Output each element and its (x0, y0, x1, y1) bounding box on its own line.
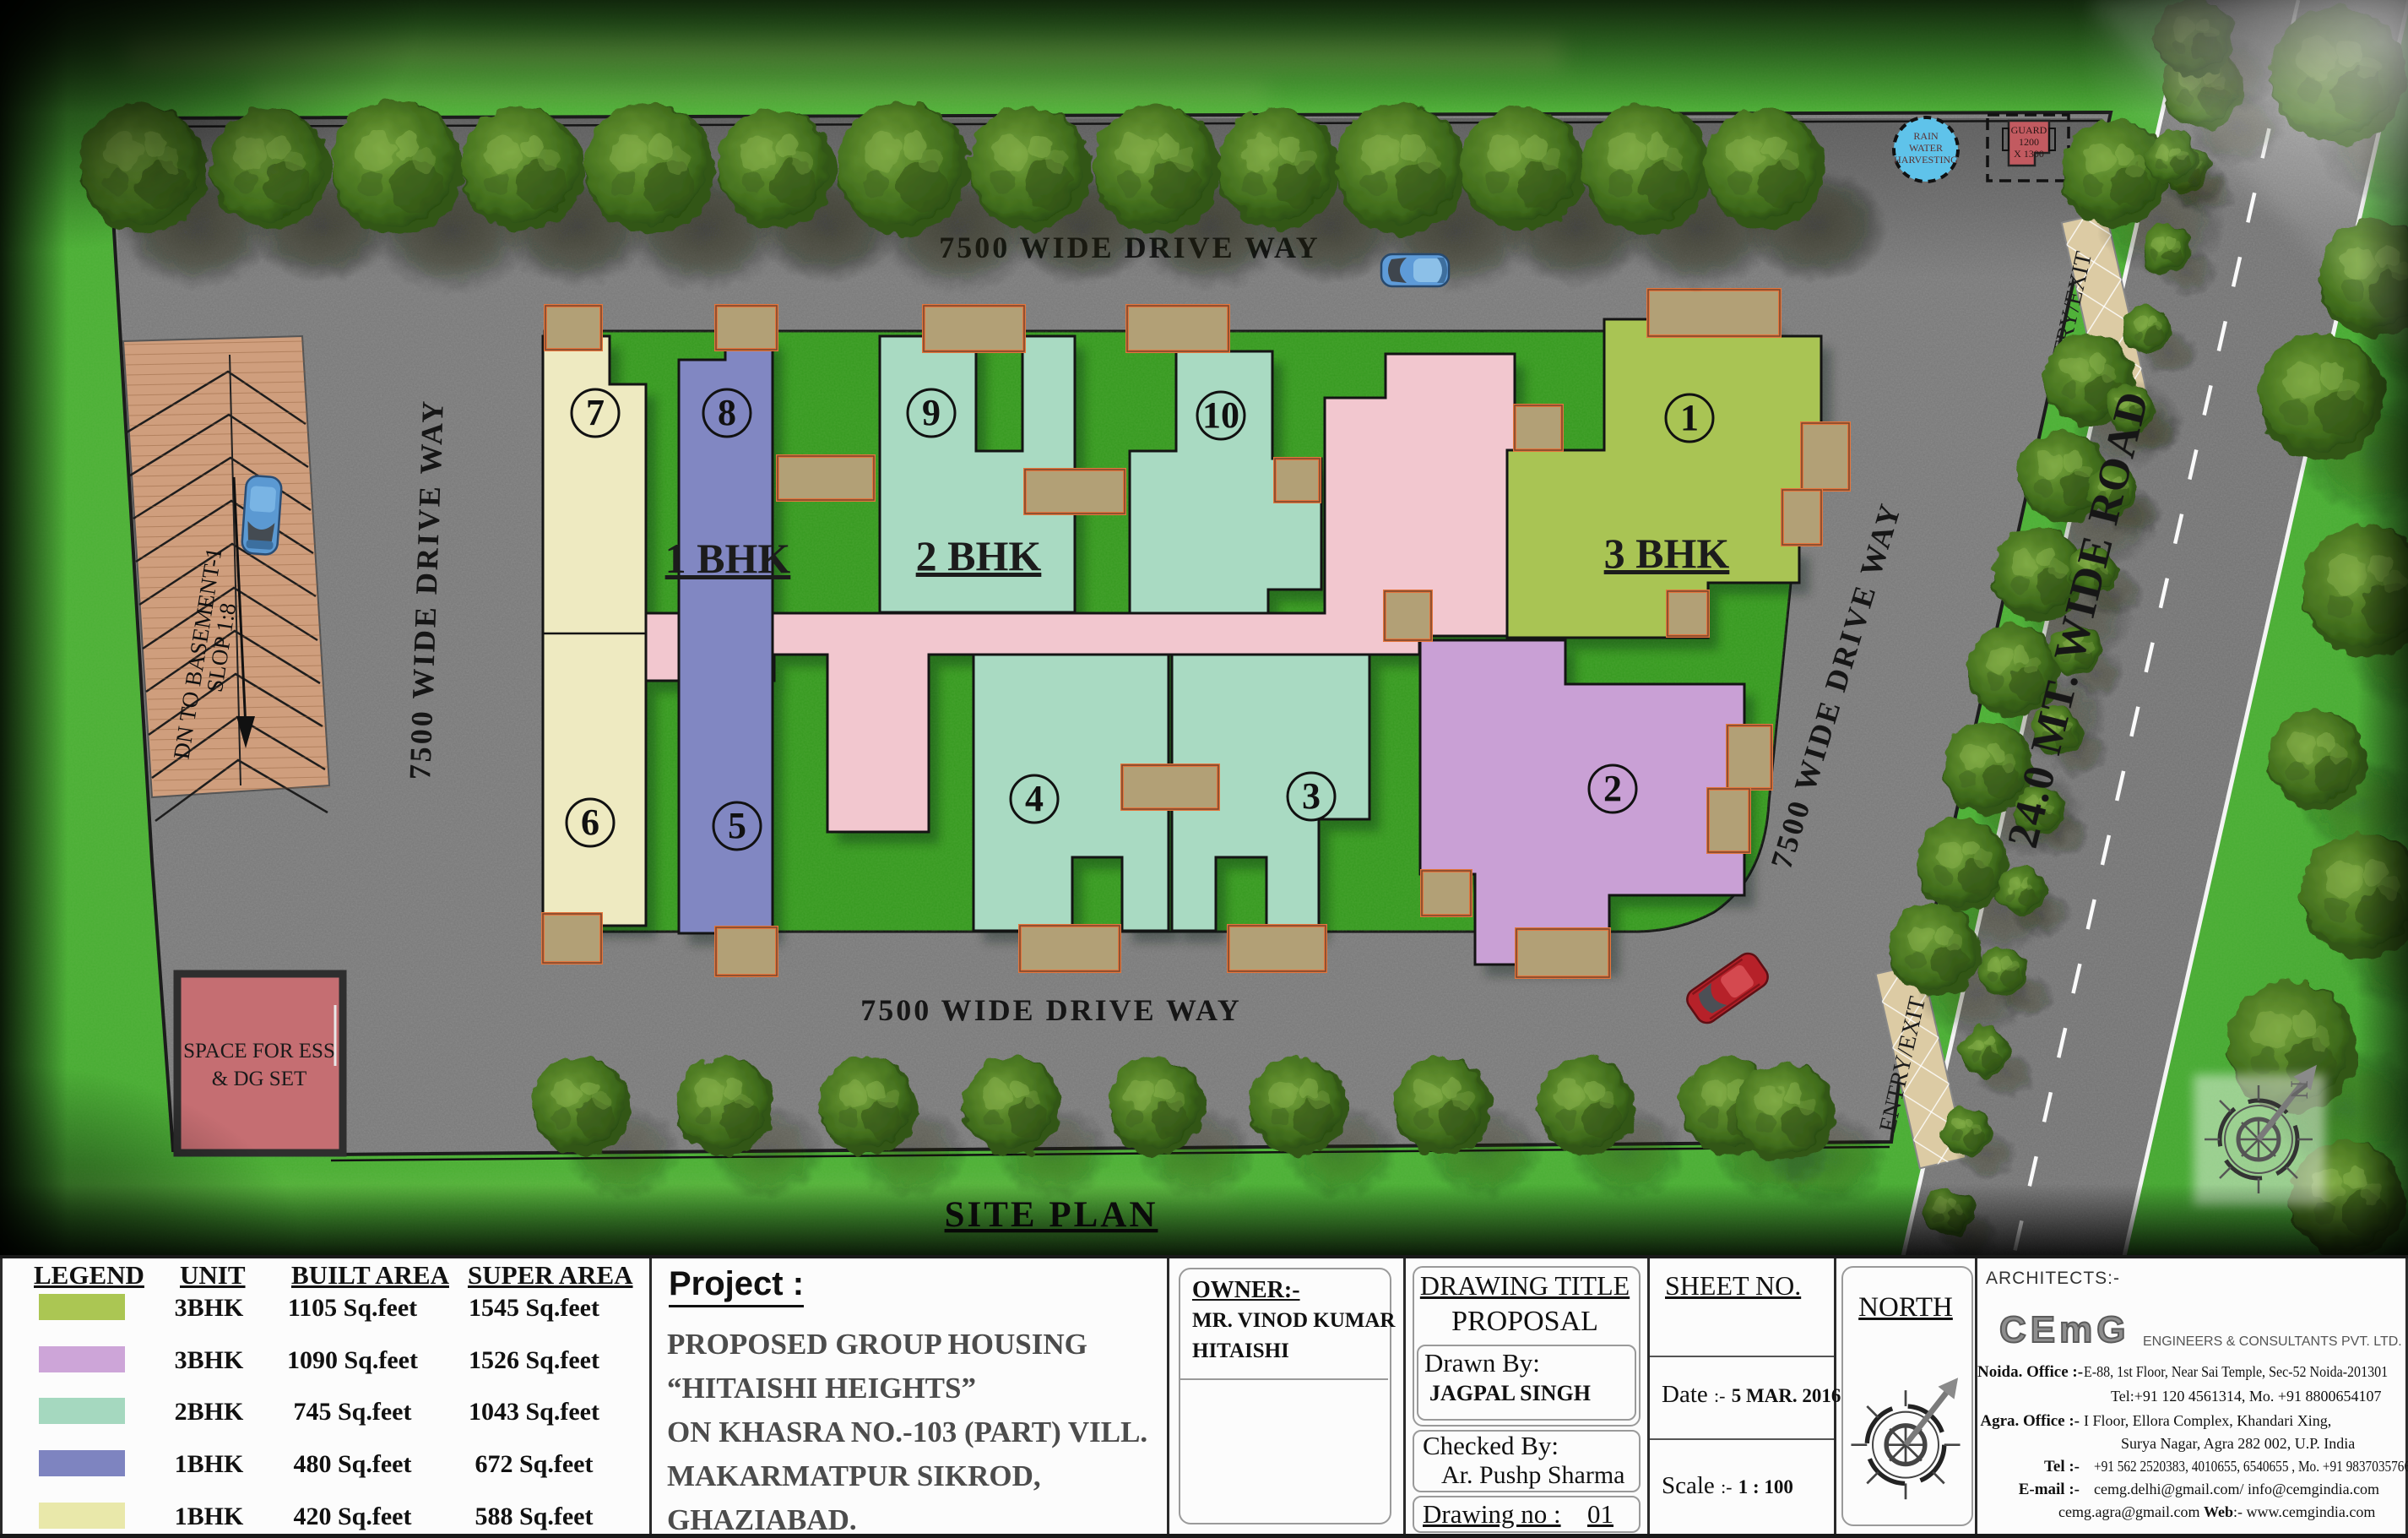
svg-text:1 BHK: 1 BHK (665, 535, 791, 582)
svg-text:GUARD: GUARD (2011, 124, 2047, 136)
svg-text:X 1300: X 1300 (2014, 148, 2044, 160)
svg-text:8: 8 (718, 392, 736, 433)
svg-text:3 BHK: 3 BHK (1604, 530, 1730, 577)
svg-text:9: 9 (922, 392, 941, 433)
svg-text:2 BHK: 2 BHK (916, 532, 1042, 579)
svg-text:1: 1 (1680, 397, 1699, 438)
svg-text:& DG SET: & DG SET (212, 1068, 307, 1090)
svg-text:WATER: WATER (1909, 142, 1943, 154)
svg-text:3: 3 (1302, 775, 1321, 817)
svg-text:2: 2 (1603, 768, 1622, 809)
svg-text:HARVESTING: HARVESTING (1894, 154, 1958, 166)
svg-text:7500 WIDE DRIVE WAY: 7500 WIDE DRIVE WAY (860, 993, 1241, 1027)
svg-text:6: 6 (581, 802, 599, 843)
svg-text:RAIN: RAIN (1913, 130, 1939, 142)
svg-text:1200: 1200 (2019, 136, 2039, 148)
svg-text:10: 10 (1202, 394, 1239, 436)
svg-text:7: 7 (586, 392, 605, 433)
svg-text:5: 5 (728, 805, 746, 846)
svg-text:SPACE FOR ESS: SPACE FOR ESS (183, 1040, 335, 1062)
svg-text:N: N (2285, 1080, 2313, 1099)
svg-text:4: 4 (1025, 778, 1044, 819)
